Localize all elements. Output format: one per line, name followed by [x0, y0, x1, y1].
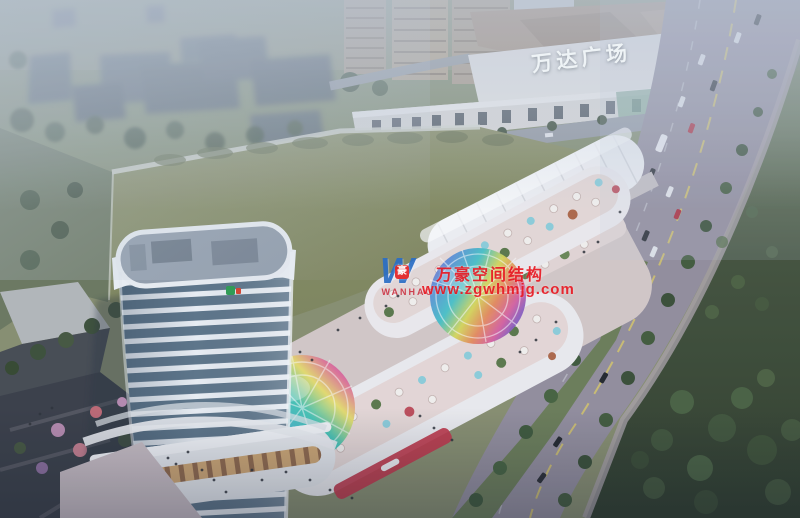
wanhao-logo-badge: 豪 — [395, 265, 409, 279]
watermark: W 豪 WANHAO 万豪空间结构 www.zgwhmjg.com — [372, 254, 582, 306]
aerial-rendering-scene: 万达广场 W 豪 WANHAO 万豪空间结构 www.zgwhmjg.com — [0, 0, 800, 518]
watermark-website-url: www.zgwhmjg.com — [422, 281, 575, 298]
